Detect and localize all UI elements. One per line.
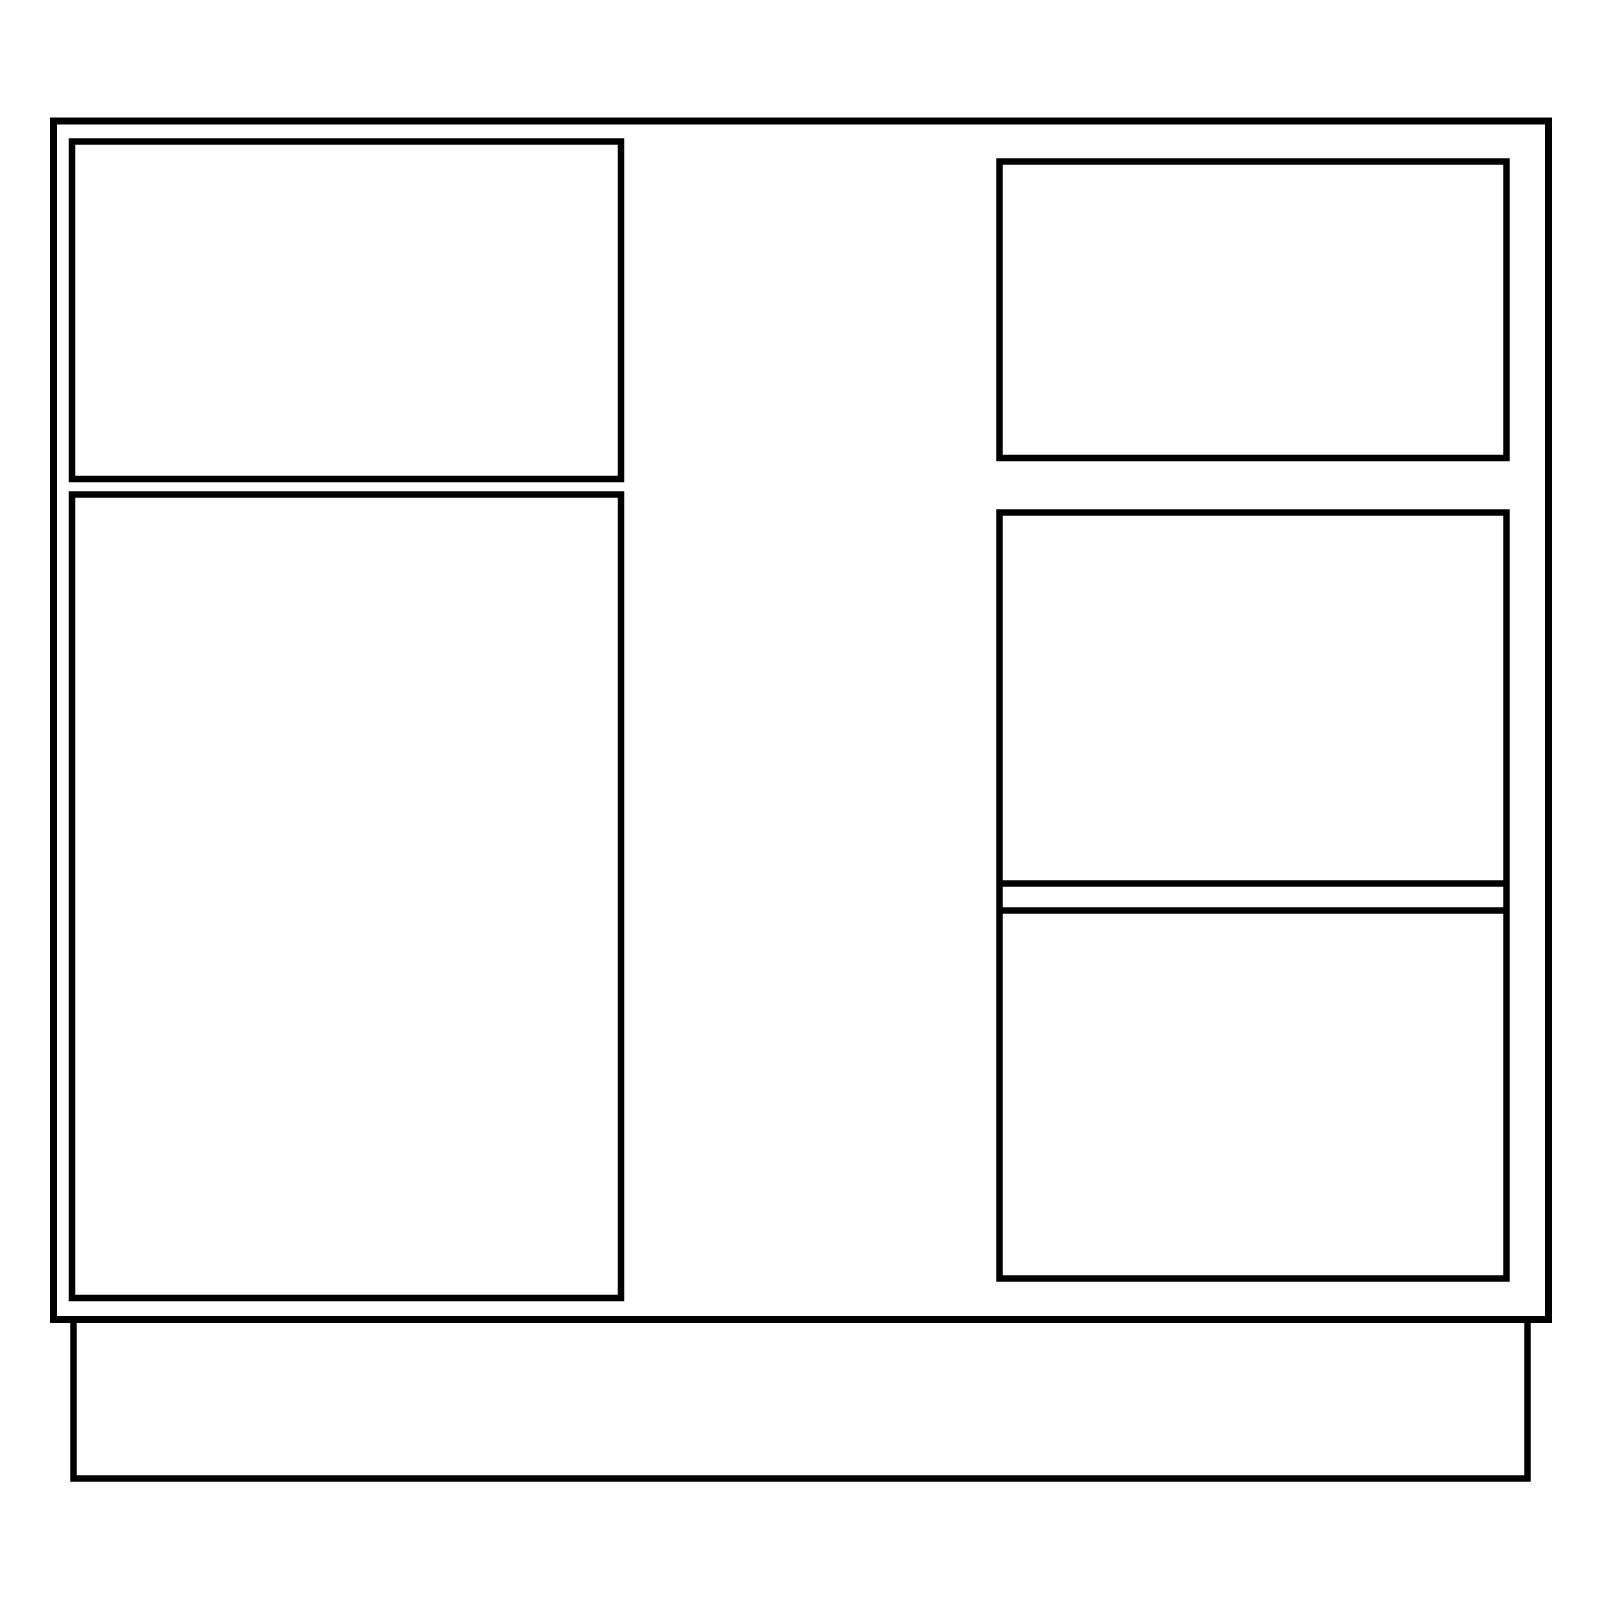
right-drawer-front xyxy=(1000,162,1507,459)
left-drawer-front xyxy=(72,142,621,480)
right-lower-panel xyxy=(1000,513,1507,1279)
cabinet-elevation-svg xyxy=(0,0,1600,1600)
plinth-base xyxy=(74,1320,1528,1479)
cabinet-body-outline xyxy=(54,121,1549,1320)
left-door-panel xyxy=(72,495,621,1299)
cabinet-elevation-drawing xyxy=(0,0,1600,1600)
